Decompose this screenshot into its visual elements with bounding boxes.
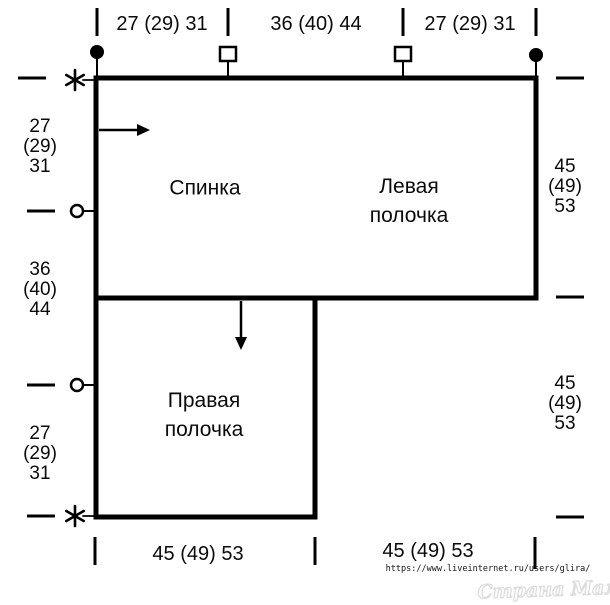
square-marker-icon — [220, 47, 236, 61]
filled-circle-marker-icon — [90, 45, 104, 59]
bottom-dimension-2: 45 (49) 53 — [382, 541, 473, 561]
left-dimension-1: 27 (29) 31 — [23, 117, 57, 177]
arrow-right-icon — [99, 124, 150, 136]
right-dash-marks-icon — [556, 78, 584, 517]
open-circle-marker-icon — [71, 205, 83, 217]
site-watermark: Страна Мам — [477, 576, 610, 603]
open-circle-marker-icon — [71, 379, 83, 391]
square-marker-icon — [395, 47, 411, 61]
piece-label-left-front: Левая полочка — [370, 172, 449, 230]
back-and-left-front-outline — [96, 78, 536, 298]
piece-label-right-front: Правая полочка — [165, 386, 244, 444]
bottom-dimension-1: 45 (49) 53 — [152, 544, 243, 564]
credit-url: https://www.liveinternet.ru/users/glira/ — [386, 564, 591, 574]
asterisk-marker-icon — [66, 70, 94, 90]
arrow-down-icon — [235, 301, 247, 350]
pattern-diagram: 27 (29) 31 36 (40) 44 27 (29) 31 27 (29)… — [0, 0, 610, 605]
top-dimension-2: 36 (40) 44 — [270, 14, 361, 34]
asterisk-marker-icon — [66, 506, 94, 526]
piece-label-back: Спинка — [169, 174, 240, 203]
filled-circle-marker-icon — [529, 48, 543, 62]
schematic-linework — [0, 0, 610, 605]
left-dimension-2: 36 (40) 44 — [23, 260, 57, 320]
left-dimension-3: 27 (29) 31 — [23, 424, 57, 484]
right-dimension-1: 45 (49) 53 — [548, 157, 582, 217]
top-dimension-3: 27 (29) 31 — [424, 14, 515, 34]
top-dimension-1: 27 (29) 31 — [116, 14, 207, 34]
right-dimension-2: 45 (49) 53 — [548, 374, 582, 434]
